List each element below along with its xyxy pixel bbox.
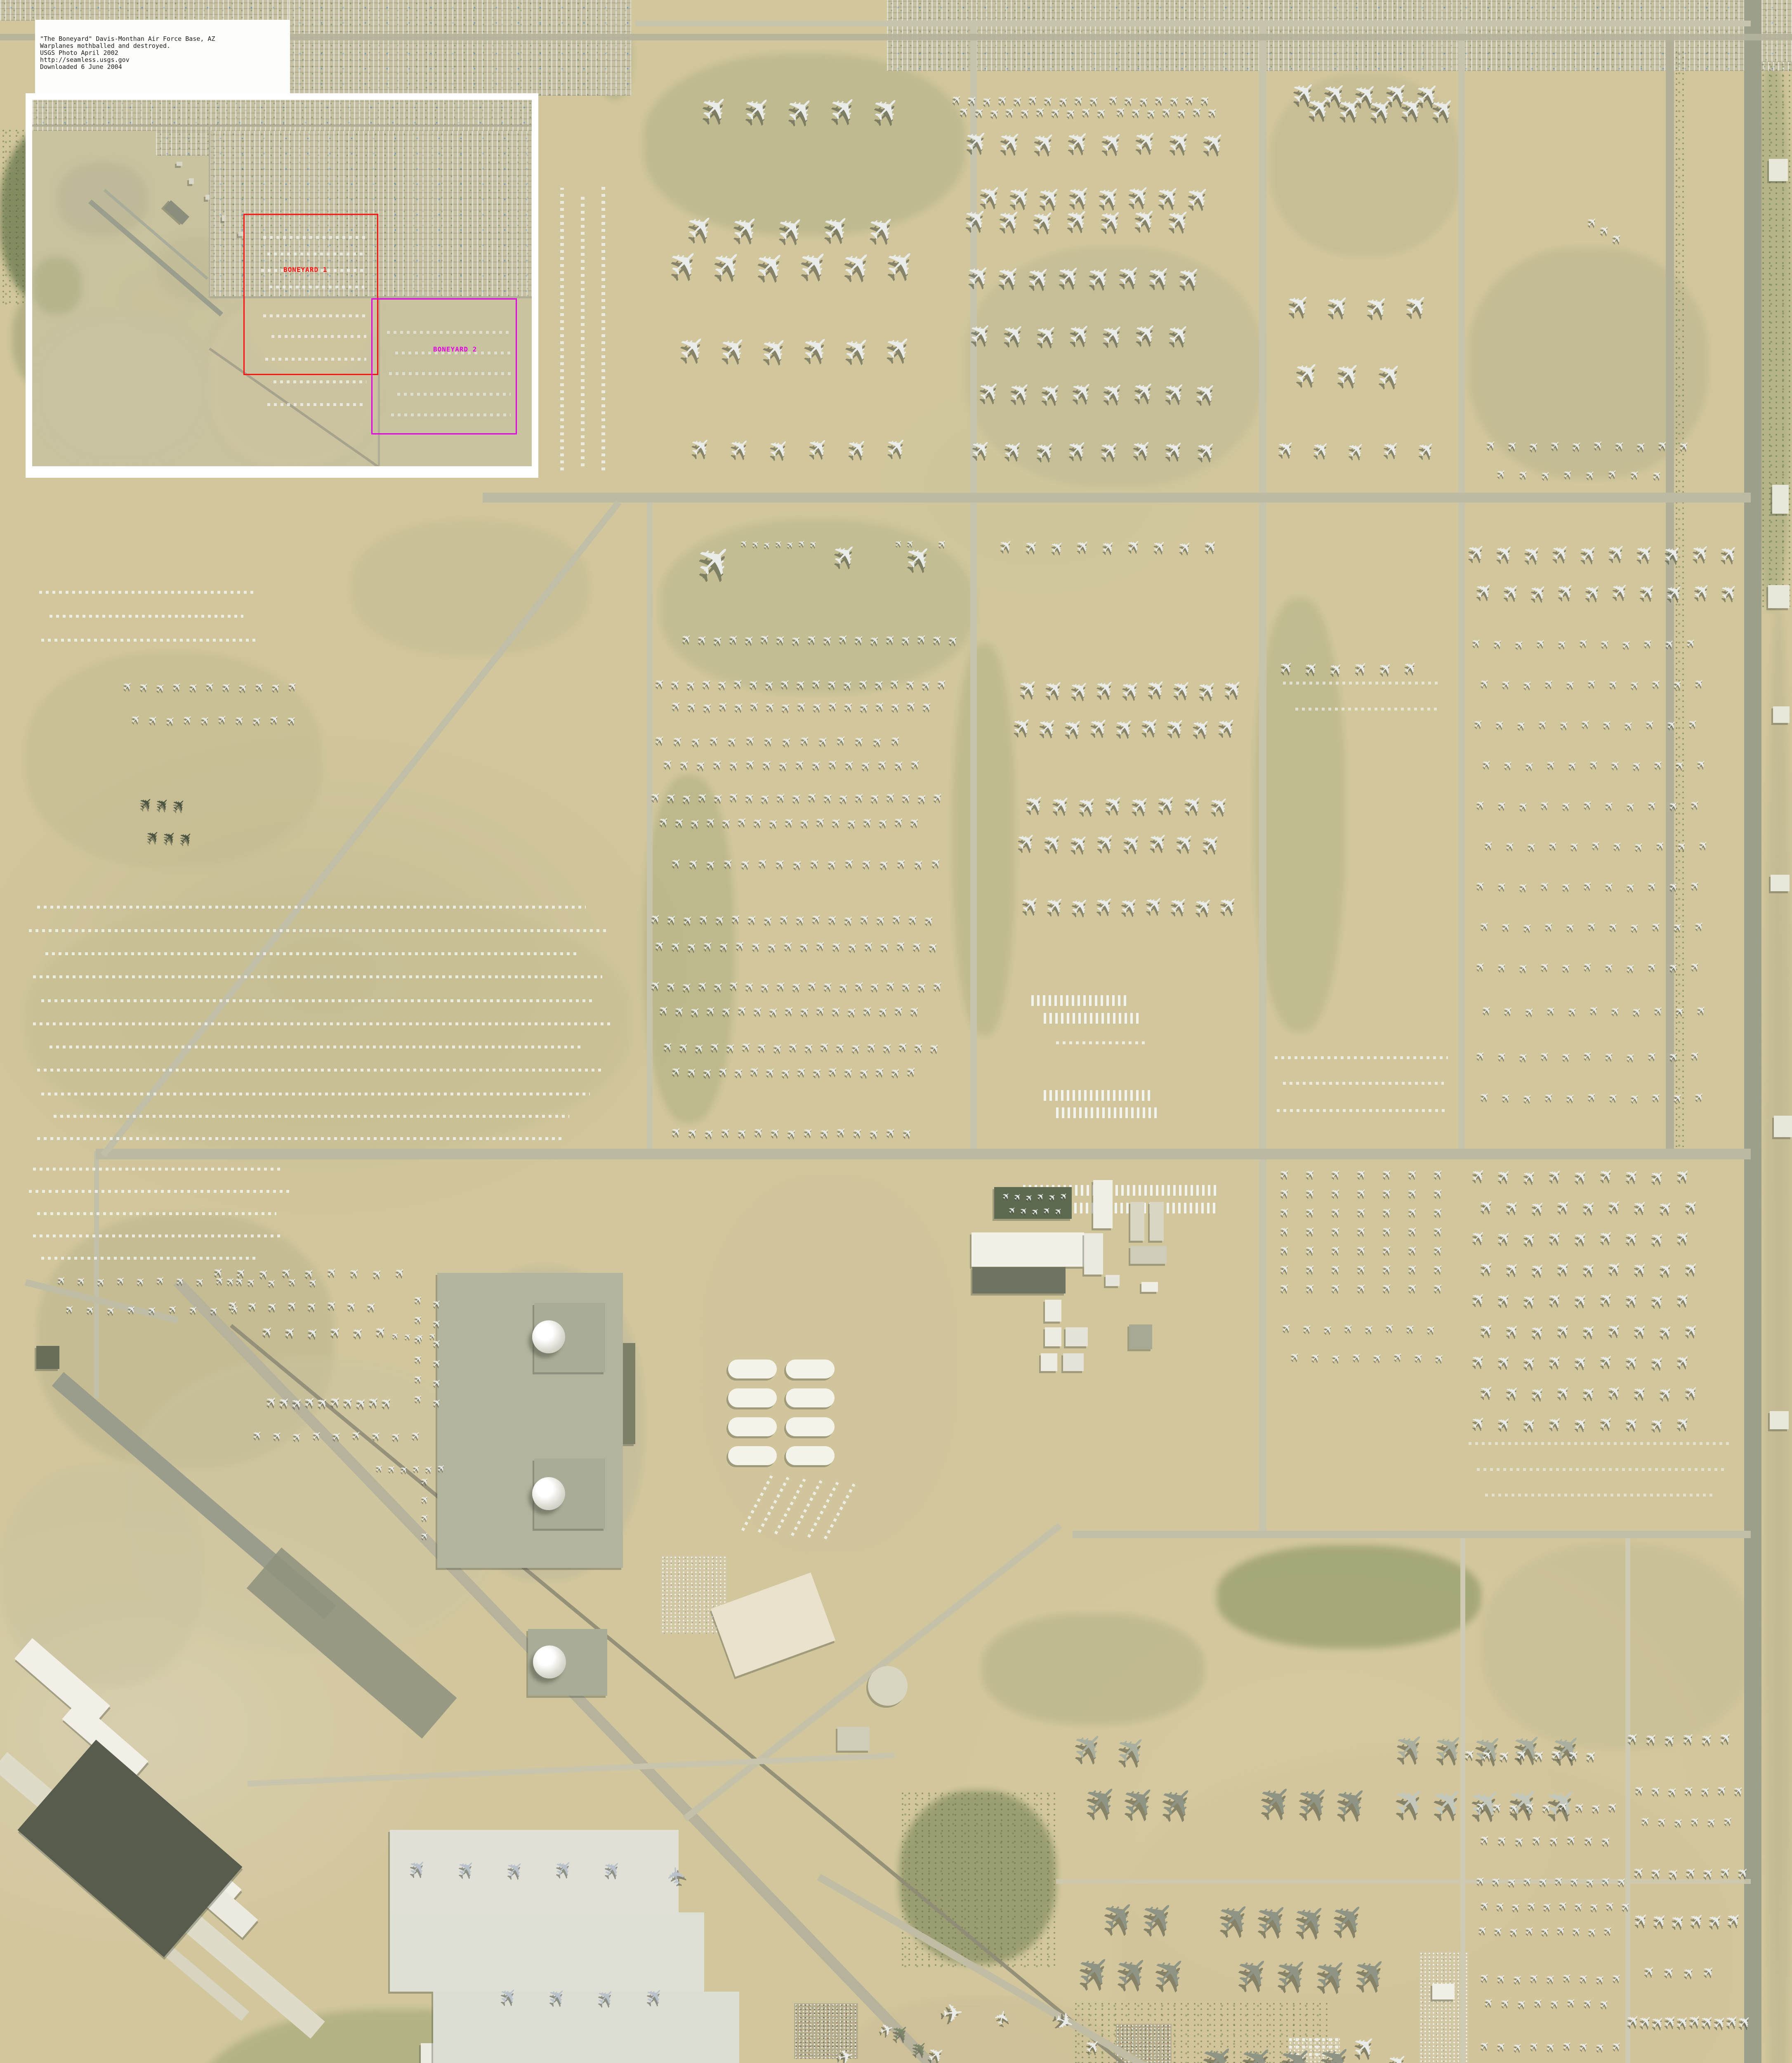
aircraft: ✈ (823, 910, 843, 929)
aircraft: ✈ (1489, 635, 1507, 653)
aircraft: ✈ (659, 754, 678, 774)
caption-line-5: Downloaded 6 June 2004 (40, 64, 290, 71)
aircraft: ✈ (1491, 1348, 1518, 1375)
aircraft-dash-row (581, 194, 585, 466)
aircraft: ✈ (1653, 1380, 1679, 1407)
aircraft: ✈ (892, 854, 912, 873)
aircraft: ✈ (736, 854, 756, 874)
aircraft: ✈ (741, 754, 761, 774)
aircraft: ✈ (1376, 433, 1409, 466)
aircraft: ✈ (823, 854, 842, 874)
aircraft: ✈ (1605, 675, 1623, 693)
aircraft: ✈ (1352, 1164, 1372, 1184)
aircraft: ✈ (1349, 655, 1374, 681)
aircraft: ✈ (1585, 755, 1603, 773)
aircraft: ✈ (764, 1002, 784, 1022)
terrain-patch (1217, 1545, 1481, 1648)
road (1625, 1535, 1630, 2063)
aircraft: ✈ (835, 977, 854, 997)
aircraft: ✈ (938, 1999, 968, 2028)
aircraft: ✈ (832, 1122, 851, 1142)
aircraft: ✈ (1691, 1088, 1709, 1106)
aircraft: ✈ (994, 533, 1019, 559)
terrain-patch (1765, 611, 1792, 2063)
aircraft: ✈ (1019, 534, 1045, 559)
aircraft: ✈ (1301, 1164, 1320, 1184)
aircraft: ✈ (1620, 716, 1638, 734)
aircraft: ✈ (1472, 957, 1490, 975)
aircraft: ✈ (1378, 1164, 1397, 1184)
aircraft: ✈ (663, 1862, 690, 1888)
aircraft: ✈ (1491, 1410, 1518, 1437)
aircraft: ✈ (1605, 1088, 1623, 1107)
building (1130, 1246, 1167, 1264)
aircraft: ✈ (760, 429, 799, 468)
aircraft: ✈ (1568, 1410, 1594, 1437)
aircraft: ✈ (902, 1062, 922, 1081)
building (177, 162, 182, 166)
aircraft: ✈ (743, 910, 762, 929)
aircraft: ✈ (1575, 634, 1593, 652)
aircraft: ✈ (1122, 533, 1147, 559)
aircraft: ✈ (1550, 1193, 1577, 1220)
aircraft: ✈ (1198, 533, 1224, 559)
aircraft: ✈ (1536, 958, 1554, 976)
aircraft: ✈ (1352, 1183, 1372, 1203)
aircraft: ✈ (391, 1263, 410, 1282)
aircraft: ✈ (824, 754, 843, 774)
building (728, 1417, 777, 1436)
road (94, 1151, 99, 1399)
aircraft: ✈ (1147, 534, 1173, 559)
aircraft-dash-row (274, 380, 366, 383)
boneyard2-outline (371, 298, 517, 434)
aircraft: ✈ (913, 789, 932, 808)
aircraft: ✈ (1627, 1379, 1654, 1406)
aircraft: ✈ (1593, 1285, 1620, 1312)
aircraft: ✈ (807, 755, 827, 775)
aircraft: ✈ (1619, 1410, 1646, 1437)
inset-map: BONEYARD 1BONEYARD 2 (26, 93, 538, 478)
aircraft-dash-row (45, 952, 578, 955)
aircraft: ✈ (1472, 795, 1490, 814)
aircraft: ✈ (1601, 1047, 1619, 1065)
aircraft: ✈ (799, 427, 839, 467)
building (1130, 1202, 1144, 1241)
caption-box: "The Boneyard" Davis-Monthan Air Force B… (35, 20, 290, 94)
aircraft: ✈ (857, 756, 876, 775)
aircraft: ✈ (927, 853, 946, 873)
road (248, 1753, 895, 1787)
road (209, 125, 210, 298)
aircraft: ✈ (766, 1123, 785, 1142)
aircraft: ✈ (1593, 1223, 1620, 1250)
aircraft: ✈ (1378, 1221, 1397, 1241)
aircraft: ✈ (1327, 1183, 1346, 1203)
aircraft: ✈ (849, 1123, 868, 1142)
aircraft: ✈ (1577, 715, 1595, 733)
building (1045, 1327, 1061, 1346)
suburb-area (289, 0, 631, 96)
aircraft: ✈ (1644, 1349, 1671, 1376)
suburb-area (156, 131, 210, 156)
aircraft: ✈ (1366, 350, 1415, 399)
radome (532, 1320, 565, 1353)
aircraft-dash-row (1056, 1041, 1147, 1044)
aircraft: ✈ (1465, 1285, 1492, 1312)
aircraft: ✈ (856, 909, 875, 929)
aircraft-dash-row (33, 1234, 281, 1237)
building (1771, 875, 1790, 891)
aircraft: ✈ (1568, 1163, 1594, 1190)
aircraft: ✈ (1641, 715, 1660, 733)
aircraft: ✈ (1348, 1348, 1366, 1366)
aircraft: ✈ (1476, 1088, 1494, 1106)
building (433, 1992, 739, 2063)
aircraft: ✈ (1173, 535, 1198, 560)
aircraft: ✈ (1276, 1164, 1295, 1184)
aircraft: ✈ (1472, 876, 1490, 895)
aircraft: ✈ (1500, 756, 1518, 774)
aircraft: ✈ (887, 731, 906, 750)
aircraft: ✈ (1070, 533, 1096, 559)
aircraft: ✈ (1378, 1183, 1397, 1203)
aircraft: ✈ (1562, 1089, 1580, 1107)
aircraft: ✈ (1550, 1317, 1577, 1343)
aircraft: ✈ (906, 754, 926, 774)
aircraft: ✈ (1686, 795, 1705, 814)
aircraft: ✈ (1327, 1278, 1346, 1298)
aircraft: ✈ (1299, 1319, 1317, 1338)
aircraft: ✈ (1647, 1781, 1666, 1801)
aircraft: ✈ (874, 322, 925, 373)
aircraft: ✈ (806, 854, 825, 873)
aircraft: ✈ (1579, 876, 1597, 895)
aircraft: ✈ (1403, 1278, 1423, 1298)
aircraft-dash-row (29, 929, 606, 932)
road (1056, 1879, 1751, 1884)
aircraft: ✈ (1521, 1003, 1539, 1021)
aircraft: ✈ (1542, 1224, 1569, 1251)
aircraft: ✈ (733, 1124, 752, 1143)
aircraft: ✈ (1516, 1287, 1543, 1314)
aircraft: ✈ (1583, 1088, 1601, 1106)
aircraft: ✈ (651, 730, 670, 750)
aircraft: ✈ (1628, 1003, 1646, 1021)
building (222, 215, 226, 221)
aircraft: ✈ (1429, 1202, 1448, 1222)
aircraft: ✈ (1352, 1278, 1372, 1298)
building (164, 200, 189, 224)
aircraft: ✈ (878, 1038, 898, 1057)
aircraft: ✈ (1411, 434, 1444, 467)
aircraft: ✈ (669, 731, 688, 751)
aircraft: ✈ (1670, 1162, 1697, 1189)
aircraft: ✈ (1670, 1348, 1697, 1374)
aircraft: ✈ (1542, 1162, 1569, 1189)
aircraft: ✈ (1341, 434, 1374, 467)
aircraft: ✈ (860, 936, 879, 956)
building (1150, 1202, 1164, 1241)
building (1063, 1353, 1084, 1371)
aircraft: ✈ (754, 853, 773, 873)
aircraft: ✈ (1562, 675, 1580, 694)
aircraft: ✈ (342, 1296, 362, 1316)
aircraft: ✈ (1579, 795, 1597, 814)
aircraft: ✈ (1209, 708, 1246, 745)
aircraft: ✈ (1653, 1194, 1679, 1221)
aircraft: ✈ (1550, 1255, 1577, 1282)
aircraft: ✈ (1403, 1164, 1423, 1184)
aircraft: ✈ (1352, 1240, 1372, 1260)
aircraft: ✈ (723, 732, 743, 751)
aircraft: ✈ (1378, 1240, 1397, 1260)
aircraft: ✈ (1540, 917, 1559, 935)
road (32, 125, 532, 127)
building (238, 232, 243, 236)
aircraft-dash-row (29, 1190, 293, 1193)
building (1769, 159, 1788, 181)
aircraft: ✈ (788, 788, 807, 808)
building (1770, 1411, 1789, 1429)
aircraft: ✈ (1402, 1319, 1420, 1338)
aircraft: ✈ (1542, 1348, 1569, 1374)
aircraft: ✈ (1403, 1183, 1423, 1203)
aircraft: ✈ (838, 428, 878, 468)
aircraft: ✈ (840, 853, 860, 873)
aircraft: ✈ (1276, 1240, 1295, 1260)
aircraft: ✈ (1601, 877, 1619, 895)
aircraft: ✈ (1678, 1378, 1705, 1405)
aircraft: ✈ (1327, 1164, 1346, 1184)
aircraft: ✈ (1601, 958, 1619, 976)
caption-line-1: "The Boneyard" Davis-Monthan Air Force B… (40, 35, 290, 42)
inset-photo: BONEYARD 1BONEYARD 2 (32, 100, 532, 466)
building (786, 1360, 835, 1378)
aircraft: ✈ (1619, 1224, 1646, 1251)
aircraft: ✈ (873, 755, 893, 774)
aircraft: ✈ (1193, 825, 1231, 862)
aircraft: ✈ (925, 1039, 945, 1058)
caption-line-2: Warplanes mothballed and destroyed. (40, 42, 290, 50)
aircraft: ✈ (1579, 1046, 1597, 1065)
aircraft: ✈ (1356, 284, 1401, 329)
caption-line-3: USGS Photo April 2002 (40, 50, 290, 57)
aircraft: ✈ (769, 1039, 788, 1058)
aircraft: ✈ (796, 1002, 815, 1021)
aircraft: ✈ (843, 814, 862, 833)
aircraft: ✈ (882, 1123, 901, 1142)
aircraft: ✈ (1576, 1379, 1603, 1406)
aircraft-dash-row (1295, 708, 1440, 710)
aircraft: ✈ (1429, 1240, 1448, 1260)
aircraft: ✈ (675, 755, 695, 774)
aircraft: ✈ (1619, 1162, 1646, 1189)
aircraft: ✈ (887, 1063, 906, 1082)
aircraft: ✈ (1493, 1047, 1511, 1065)
aircraft: ✈ (1650, 755, 1668, 774)
aircraft: ✈ (323, 1263, 342, 1282)
aircraft: ✈ (1474, 1316, 1500, 1343)
aircraft: ✈ (1601, 1378, 1628, 1405)
terrain-patch (57, 162, 148, 236)
aircraft: ✈ (1678, 1193, 1705, 1220)
aircraft: ✈ (682, 675, 701, 695)
aircraft: ✈ (1499, 1193, 1526, 1220)
aircraft-dash-row (560, 188, 564, 470)
aircraft: ✈ (890, 755, 909, 775)
aircraft: ✈ (721, 428, 760, 467)
aircraft: ✈ (1627, 1317, 1654, 1344)
aircraft: ✈ (1474, 1254, 1500, 1281)
terrain-patch (953, 644, 1015, 1036)
aircraft: ✈ (924, 937, 943, 957)
aircraft: ✈ (1542, 1286, 1569, 1312)
aircraft: ✈ (1525, 1318, 1551, 1345)
aircraft: ✈ (1497, 918, 1516, 936)
aircraft: ✈ (1601, 1316, 1628, 1343)
building (36, 1346, 59, 1369)
building (711, 1572, 835, 1677)
aircraft-dash-row (33, 975, 602, 978)
aircraft: ✈ (1045, 535, 1070, 560)
aircraft: ✈ (1192, 120, 1237, 165)
aircraft: ✈ (1626, 918, 1644, 937)
aircraft: ✈ (1536, 1047, 1554, 1065)
aircraft: ✈ (1653, 1318, 1679, 1345)
aircraft-dash-row (267, 403, 366, 406)
aircraft: ✈ (1211, 887, 1247, 923)
road (1073, 1531, 1751, 1538)
building (1093, 1180, 1113, 1228)
aircraft: ✈ (1519, 676, 1537, 694)
aircraft: ✈ (1369, 1349, 1387, 1367)
aircraft-dash-row (41, 1257, 256, 1260)
aircraft: ✈ (1540, 675, 1559, 693)
aircraft: ✈ (1564, 756, 1582, 774)
aircraft: ✈ (898, 1124, 917, 1143)
aircraft: ✈ (1474, 1192, 1500, 1219)
aircraft: ✈ (1644, 1411, 1671, 1437)
aircraft: ✈ (1536, 877, 1554, 895)
suburb-area (1761, 0, 1792, 62)
building (786, 1446, 835, 1465)
aircraft: ✈ (1478, 1001, 1496, 1019)
aircraft-dash-row (50, 615, 243, 618)
aircraft: ✈ (1301, 1221, 1320, 1241)
aircraft: ✈ (1593, 1161, 1620, 1188)
aircraft-dash-row (37, 906, 586, 909)
aircraft: ✈ (1515, 959, 1533, 977)
aircraft: ✈ (1301, 1183, 1320, 1203)
aircraft: ✈ (1601, 796, 1619, 814)
aircraft: ✈ (1493, 877, 1511, 895)
aircraft: ✈ (1693, 1001, 1711, 1019)
aircraft: ✈ (1648, 917, 1666, 935)
aircraft: ✈ (775, 909, 795, 929)
aircraft: ✈ (1286, 1348, 1304, 1366)
aircraft: ✈ (1619, 1286, 1646, 1313)
aircraft: ✈ (1316, 283, 1361, 328)
aircraft: ✈ (807, 909, 827, 928)
aircraft: ✈ (1301, 1240, 1320, 1260)
aircraft: ✈ (1607, 1002, 1625, 1020)
aircraft: ✈ (788, 977, 807, 996)
aircraft: ✈ (1497, 675, 1516, 693)
aircraft: ✈ (758, 755, 777, 774)
aircraft: ✈ (1476, 674, 1494, 692)
aircraft: ✈ (1627, 1193, 1654, 1220)
aircraft: ✈ (929, 788, 948, 807)
aircraft: ✈ (1327, 1259, 1346, 1279)
aircraft: ✈ (816, 1124, 835, 1143)
aircraft: ✈ (1276, 1202, 1295, 1222)
aircraft: ✈ (1678, 1255, 1705, 1282)
aircraft: ✈ (1465, 1347, 1492, 1374)
aircraft: ✈ (1715, 1727, 1738, 1750)
aircraft: ✈ (1519, 1089, 1537, 1107)
aircraft: ✈ (1525, 1380, 1551, 1407)
aircraft: ✈ (741, 730, 761, 750)
aircraft: ✈ (799, 1123, 818, 1142)
aircraft: ✈ (725, 755, 744, 775)
aircraft: ✈ (1670, 1224, 1697, 1251)
aircraft: ✈ (1515, 797, 1533, 815)
aircraft-dash-row (41, 1093, 590, 1095)
aircraft: ✈ (874, 1002, 894, 1021)
aircraft: ✈ (1306, 433, 1339, 467)
road (635, 21, 1751, 26)
aircraft: ✈ (788, 855, 808, 874)
aircraft: ✈ (779, 936, 799, 956)
aircraft-dash-row (601, 186, 605, 470)
aircraft: ✈ (1542, 1409, 1569, 1436)
building (1772, 485, 1789, 514)
aircraft: ✈ (750, 1122, 769, 1142)
aircraft: ✈ (811, 936, 831, 955)
aircraft-dash-row (41, 999, 594, 1002)
aircraft: ✈ (348, 1322, 370, 1344)
aircraft: ✈ (1695, 836, 1713, 854)
aircraft: ✈ (1525, 1256, 1551, 1283)
aircraft: ✈ (1301, 1259, 1320, 1279)
aircraft: ✈ (1431, 1349, 1449, 1367)
aircraft: ✈ (1327, 1202, 1346, 1222)
aircraft-dash-row (39, 591, 254, 594)
aircraft: ✈ (1558, 958, 1576, 977)
aircraft: ✈ (1429, 1278, 1448, 1298)
aircraft: ✈ (1325, 349, 1373, 398)
aircraft: ✈ (904, 910, 923, 929)
terrain-patch (32, 314, 210, 466)
terrain-patch (1481, 1543, 1753, 1749)
aircraft: ✈ (1499, 1255, 1526, 1282)
aircraft: ✈ (1544, 836, 1563, 854)
aircraft: ✈ (1583, 917, 1601, 935)
aircraft-dash-row (1469, 1442, 1733, 1445)
aircraft: ✈ (1579, 957, 1597, 975)
building (390, 1912, 704, 1992)
aircraft: ✈ (1566, 837, 1584, 855)
aircraft-dash-row (1044, 1090, 1151, 1101)
building (728, 1446, 777, 1465)
aircraft: ✈ (843, 1002, 862, 1022)
aircraft: ✈ (1389, 1348, 1408, 1366)
aircraft: ✈ (917, 675, 936, 695)
aircraft: ✈ (1491, 715, 1509, 734)
aircraft: ✈ (796, 813, 815, 833)
aircraft: ✈ (368, 1264, 387, 1284)
